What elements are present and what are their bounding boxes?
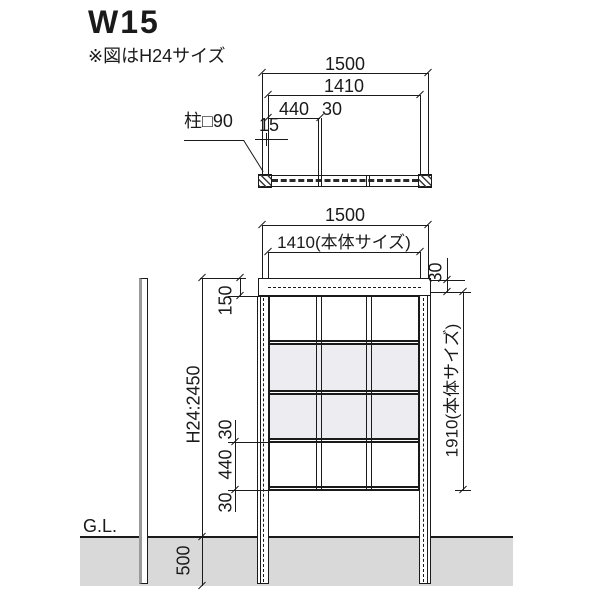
leader-line [243,140,263,172]
extension-line [262,225,263,278]
dim-tick [266,133,267,146]
dimension-line [447,258,448,292]
left-post-centerline [263,298,264,582]
drawing-canvas: W15 ※図はH24サイズ 1500 1410 440 30 15 柱□90 1… [0,0,600,600]
extension-line [268,252,269,278]
dimension-line [262,73,428,74]
extension-line [321,118,322,175]
elev-dim-150: 150 [217,281,236,321]
dimension-line [262,225,428,226]
top-rail-centerline [268,287,421,288]
ground-label: G.L. [83,517,117,536]
right-post-edge [427,296,428,584]
plan-beam-divider [369,175,370,187]
left-post-edge [260,296,261,584]
elev-dim-total-height: H24:2450 [185,363,204,447]
right-post-centerline [423,298,424,582]
elev-dim-1410-body: 1410(本体サイズ) [264,233,424,252]
elev-dim-30-upper: 30 [217,415,236,445]
plan-post-section [258,174,272,188]
dimension-line [268,95,420,96]
size-note: ※図はH24サイズ [88,42,226,68]
plan-dim-1500: 1500 [277,55,413,74]
dimension-line [255,139,288,140]
elev-dim-30-lower: 30 [217,488,236,518]
elev-dim-440: 440 [217,445,236,485]
panel-frame [269,296,419,491]
extension-line [318,118,319,175]
extension-line [420,95,421,175]
dimension-line [268,252,420,253]
post-side-view [139,278,148,584]
page-title: W15 [88,4,160,41]
right-post [419,296,431,584]
plan-beam-divider [318,175,319,187]
plan-beam-divider [366,175,367,187]
dimension-line [463,292,464,490]
elev-dim-500: 500 [175,541,194,581]
plan-beam-hatch [272,179,418,182]
leader-line [184,140,244,141]
dimension-line [202,537,203,586]
extension-line [420,252,421,278]
plan-dim-1410: 1410 [276,77,412,96]
extension-line [428,73,429,175]
plan-beam-divider [321,175,322,187]
plan-dim-30: 30 [318,100,346,119]
elev-dim-1910-body: 1910(本体サイズ) [443,311,462,471]
extension-line [431,280,465,281]
post-callout-label: 柱□90 [184,112,233,131]
elev-dim-1500: 1500 [277,206,413,225]
plan-dim-15: 15 [259,116,279,135]
plan-post-section [418,174,432,188]
